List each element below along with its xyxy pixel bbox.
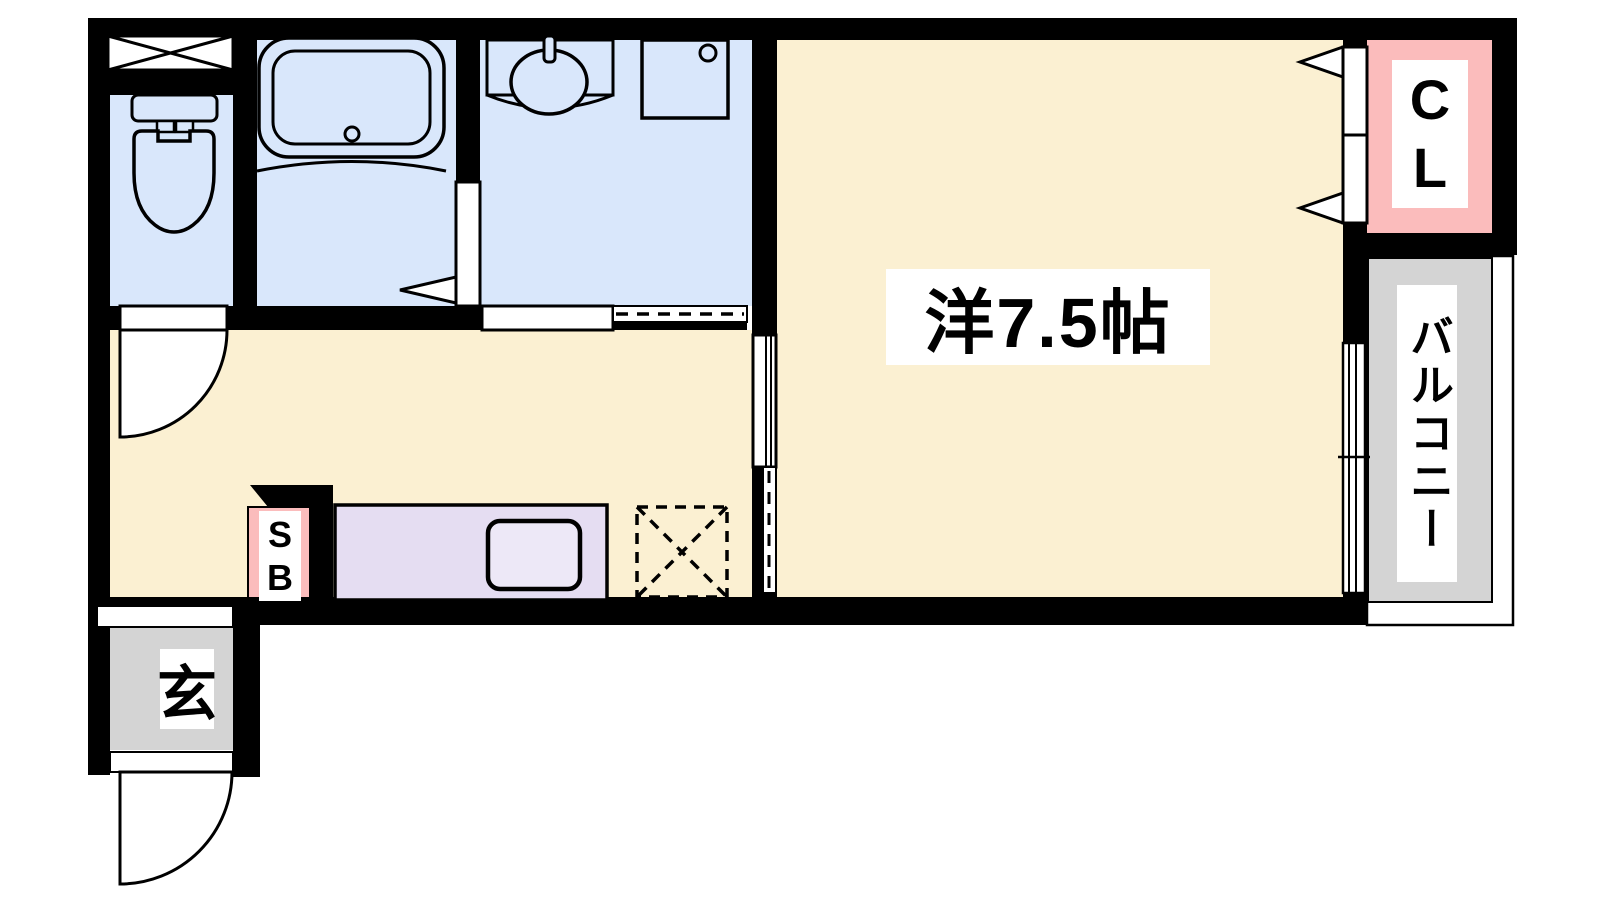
main-room-label: 洋7.5帖 bbox=[886, 269, 1210, 365]
entrance-label: 玄 bbox=[160, 649, 214, 729]
wall-under-window bbox=[108, 70, 235, 95]
sliding-door-panel-vertical bbox=[753, 335, 776, 467]
washing-machine-pan-icon bbox=[642, 40, 728, 118]
balcony-label: バルコニー bbox=[1397, 285, 1457, 582]
floor-plan: 洋7.5帖 C L S B 玄 バルコニー bbox=[0, 0, 1600, 900]
bathtub-icon bbox=[257, 38, 446, 171]
wall-left bbox=[88, 18, 110, 775]
bathroom-door bbox=[456, 182, 480, 306]
entrance-step bbox=[97, 606, 233, 627]
wall-toilet-right bbox=[233, 40, 257, 330]
closet-label: C L bbox=[1392, 60, 1468, 208]
toilet-door-leaf bbox=[120, 306, 227, 330]
wall-entrance-right bbox=[233, 597, 260, 777]
kitchen-counter bbox=[335, 505, 607, 600]
toilet-icon bbox=[132, 95, 217, 232]
entrance-door-arc bbox=[120, 772, 232, 884]
balcony-sliding-window-icon bbox=[1343, 343, 1365, 593]
closet-label-line1: C bbox=[1410, 66, 1450, 134]
sliding-door-track-vertical bbox=[763, 467, 776, 593]
wall-closet-right bbox=[1492, 18, 1517, 255]
shoe-box-label-line1: S bbox=[268, 513, 292, 556]
entrance-threshold bbox=[110, 752, 233, 772]
kitchen-sink-icon bbox=[488, 521, 580, 589]
wall-bath-washroom bbox=[456, 40, 480, 182]
closet-label-line2: L bbox=[1413, 134, 1447, 202]
shoe-box-label-line2: B bbox=[267, 556, 293, 599]
sliding-door-panel-horizontal bbox=[482, 306, 613, 330]
shoe-box-label: S B bbox=[259, 511, 301, 601]
floor-plan-drawing bbox=[0, 0, 1600, 900]
wash-basin-icon bbox=[487, 36, 613, 114]
wall-bottom bbox=[88, 597, 1367, 625]
wall-closet-bottom bbox=[1367, 233, 1517, 255]
